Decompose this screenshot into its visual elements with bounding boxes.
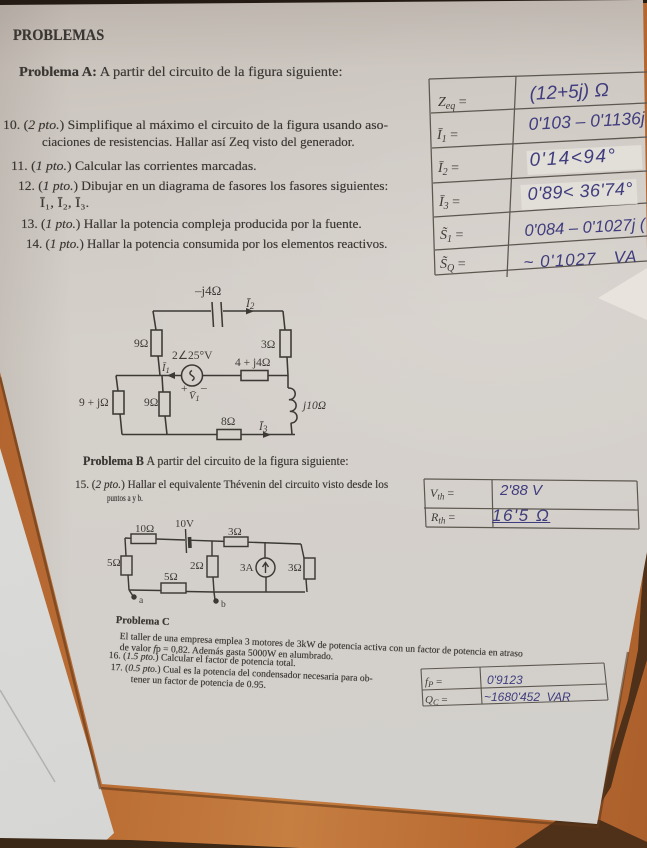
svg-text:fP =: fP =: [425, 676, 442, 689]
svg-text:QC =: QC =: [425, 694, 448, 707]
